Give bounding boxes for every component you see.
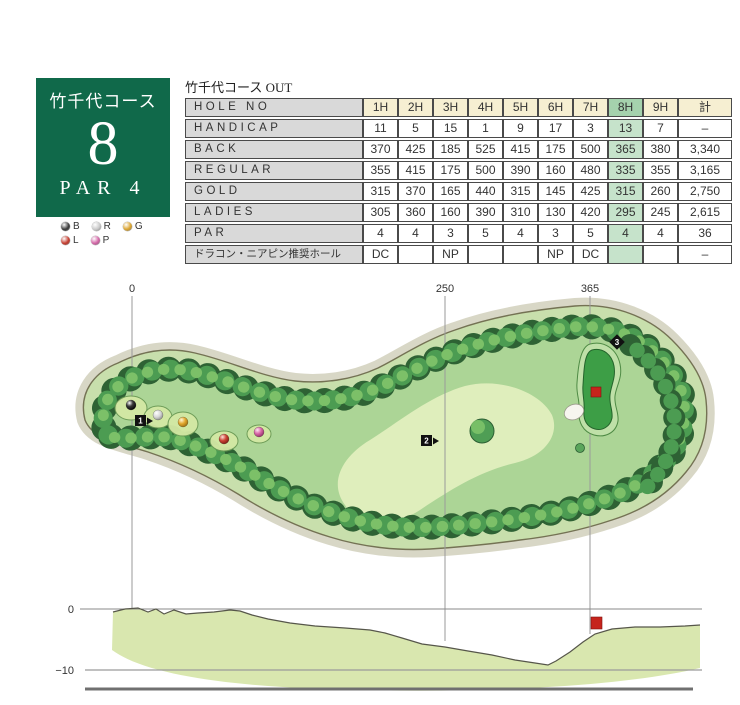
row-label: HOLE NO [185, 98, 363, 117]
l-tee-ball-icon [61, 236, 70, 245]
scorecard-cell: 4 [503, 224, 538, 243]
svg-text:1: 1 [138, 417, 143, 426]
scorecard-cell: 3 [573, 119, 608, 138]
svg-text:2: 2 [424, 437, 429, 446]
scorecard-cell: 525 [468, 140, 503, 159]
scorecard-cell: 390 [468, 203, 503, 222]
tee-legend-item: G [123, 221, 143, 232]
gold-tee-ball [178, 417, 188, 427]
elevation-zero-label: 0 [68, 604, 74, 616]
scorecard-cell: 245 [643, 203, 678, 222]
scorecard-cell: – [678, 119, 732, 138]
scorecard-cell: 4 [398, 224, 433, 243]
column-header: 2H [398, 98, 433, 117]
column-header: 7H [573, 98, 608, 117]
scorecard-cell: 165 [433, 182, 468, 201]
scorecard-cell: 425 [398, 140, 433, 159]
scorecard-cell: 145 [538, 182, 573, 201]
terrain-fill [112, 608, 700, 691]
scorecard-cell: 310 [503, 203, 538, 222]
pin-marker [591, 387, 601, 397]
scorecard-cell: 17 [538, 119, 573, 138]
distance-label-365: 365 [581, 283, 599, 295]
table-row: BACK3704251855254151755003653803,340 [185, 140, 732, 159]
tee-legend-row: LP [61, 235, 143, 246]
column-header: 6H [538, 98, 573, 117]
elevation-profile: 0 −10 [55, 604, 702, 691]
scorecard-cell: 425 [573, 182, 608, 201]
scorecard-cell: 3 [538, 224, 573, 243]
tee-legend-label: B [73, 221, 80, 232]
scorecard-cell: 420 [573, 203, 608, 222]
scorecard-cell: 355 [363, 161, 398, 180]
profile-pin-marker [591, 617, 602, 629]
scorecard-cell: 7 [643, 119, 678, 138]
column-header: 4H [468, 98, 503, 117]
scorecard-cell: 130 [538, 203, 573, 222]
scorecard-cell: 355 [643, 161, 678, 180]
column-header: 計 [678, 98, 732, 117]
scorecard-cell [468, 245, 503, 264]
scorecard-cell: 2,750 [678, 182, 732, 201]
fairway-tree [470, 419, 494, 443]
scorecard-cell: 3,340 [678, 140, 732, 159]
scorecard-cell [503, 245, 538, 264]
row-label: GOLD [185, 182, 363, 201]
scorecard-cell [643, 245, 678, 264]
scorecard-cell: 370 [363, 140, 398, 159]
scorecard-cell: 4 [363, 224, 398, 243]
golf-hole-guide-page: { "hole_card": { "course_name": "竹千代コース"… [0, 0, 740, 705]
scorecard-cell: 305 [363, 203, 398, 222]
table-row: PAR44354354436 [185, 224, 732, 243]
scorecard-cell: – [678, 245, 732, 264]
scorecard-cell: 175 [538, 140, 573, 159]
hole-number: 8 [36, 113, 170, 175]
scorecard-cell: 500 [468, 161, 503, 180]
scorecard-cell: 365 [608, 140, 643, 159]
scorecard-cell: 315 [608, 182, 643, 201]
b-tee-ball-icon [61, 222, 70, 231]
tee-legend-label: G [135, 221, 143, 232]
scorecard-cell: 175 [433, 161, 468, 180]
scorecard-cell: 4 [643, 224, 678, 243]
scorecard-cell: 295 [608, 203, 643, 222]
scorecard-cell: 415 [503, 140, 538, 159]
scorecard-cell: 1 [468, 119, 503, 138]
tee-legend-label: L [73, 235, 79, 246]
row-label: HANDICAP [185, 119, 363, 138]
column-header: 8H [608, 98, 643, 117]
scorecard-cell: 185 [433, 140, 468, 159]
table-row: HANDICAP1151519173137– [185, 119, 732, 138]
scorecard-cell: 36 [678, 224, 732, 243]
g-tee-ball-icon [123, 222, 132, 231]
scorecard-cell: 335 [608, 161, 643, 180]
course-name: 竹千代コース [36, 87, 170, 112]
scorecard-cell: 370 [398, 182, 433, 201]
scorecard-cell: 160 [538, 161, 573, 180]
table-row: ドラコン・ニアピン推奨ホールDCNPNPDC– [185, 245, 732, 264]
par-label: PAR 4 [36, 177, 170, 200]
scorecard-cell: 390 [503, 161, 538, 180]
scorecard-cell: 3,165 [678, 161, 732, 180]
scorecard-cell: 9 [503, 119, 538, 138]
row-label: BACK [185, 140, 363, 159]
scorecard-cell: 5 [573, 224, 608, 243]
table-row: HOLE NO1H2H3H4H5H6H7H8H9H計 [185, 98, 732, 117]
table-row: REGULAR3554151755003901604803353553,165 [185, 161, 732, 180]
scorecard-cell [608, 245, 643, 264]
row-label: PAR [185, 224, 363, 243]
scorecard-cell: 11 [363, 119, 398, 138]
scorecard-cell: 260 [643, 182, 678, 201]
scorecard-cell: 415 [398, 161, 433, 180]
scorecard-cell: 5 [468, 224, 503, 243]
scorecard-cell: 440 [468, 182, 503, 201]
scorecard-table: HOLE NO1H2H3H4H5H6H7H8H9H計HANDICAP115151… [185, 96, 732, 266]
scorecard-cell: 500 [573, 140, 608, 159]
table-row: GOLD3153701654403151454253152602,750 [185, 182, 732, 201]
scorecard-cell: 4 [608, 224, 643, 243]
bush [576, 444, 585, 453]
scorecard-cell [398, 245, 433, 264]
distance-label-250: 250 [436, 283, 454, 295]
tee-legend: BRGLP [61, 221, 143, 249]
scorecard-cell: NP [538, 245, 573, 264]
scorecard-cell: 315 [363, 182, 398, 201]
scorecard-cell: 360 [398, 203, 433, 222]
tee-legend-item: R [92, 221, 111, 232]
scorecard-cell: DC [573, 245, 608, 264]
scorecard-cell: 480 [573, 161, 608, 180]
row-label: ドラコン・ニアピン推奨ホール [185, 245, 363, 264]
column-header: 5H [503, 98, 538, 117]
column-header: 1H [363, 98, 398, 117]
ladies-tee-ball [219, 434, 229, 444]
pink-tee-ball [254, 427, 264, 437]
row-label: LADIES [185, 203, 363, 222]
scorecard-cell: NP [433, 245, 468, 264]
scorecard-cell: DC [363, 245, 398, 264]
column-header: 3H [433, 98, 468, 117]
tee-legend-label: R [104, 221, 111, 232]
column-header: 9H [643, 98, 678, 117]
svg-text:3: 3 [615, 338, 620, 347]
p-tee-ball-icon [91, 236, 100, 245]
tee-legend-item: P [91, 235, 110, 246]
elevation-minus-label: −10 [55, 665, 74, 677]
hole-card: 竹千代コース 8 PAR 4 [36, 78, 170, 217]
scorecard-cell: 3 [433, 224, 468, 243]
scorecard-cell: 315 [503, 182, 538, 201]
r-tee-ball-icon [92, 222, 101, 231]
table-row: LADIES3053601603903101304202952452,615 [185, 203, 732, 222]
scorecard-cell: 160 [433, 203, 468, 222]
tee-legend-label: P [103, 235, 110, 246]
scorecard-cell: 5 [398, 119, 433, 138]
row-label: REGULAR [185, 161, 363, 180]
scorecard-cell: 380 [643, 140, 678, 159]
scorecard-cell: 2,615 [678, 203, 732, 222]
distance-label-0: 0 [129, 283, 135, 295]
regular-tee-ball [153, 410, 163, 420]
back-tee-ball [126, 400, 136, 410]
scorecard-cell: 13 [608, 119, 643, 138]
tee-legend-item: L [61, 235, 79, 246]
tee-legend-item: B [61, 221, 80, 232]
course-map: 1 2 3 0 250 365 0 −10 [0, 280, 740, 705]
tee-legend-row: BRG [61, 221, 143, 232]
scorecard-cell: 15 [433, 119, 468, 138]
